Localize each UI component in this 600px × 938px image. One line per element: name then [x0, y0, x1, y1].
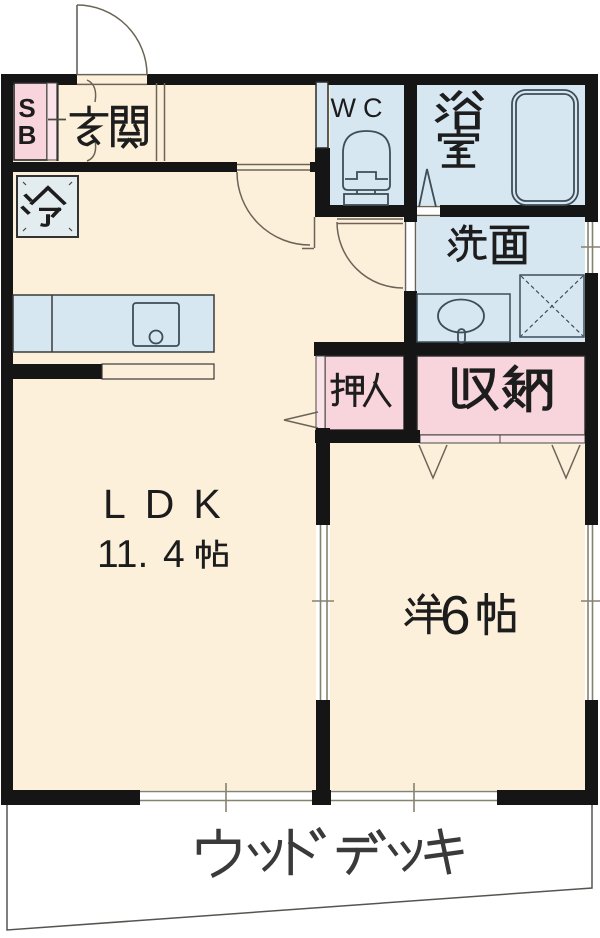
svg-text:4: 4 [163, 533, 185, 576]
svg-text:6: 6 [440, 584, 471, 646]
svg-text:11.: 11. [97, 533, 148, 576]
svg-text:B: B [18, 120, 37, 150]
svg-text:WC: WC [331, 93, 390, 123]
svg-text:S: S [18, 93, 35, 123]
svg-text:LDK: LDK [103, 481, 240, 527]
